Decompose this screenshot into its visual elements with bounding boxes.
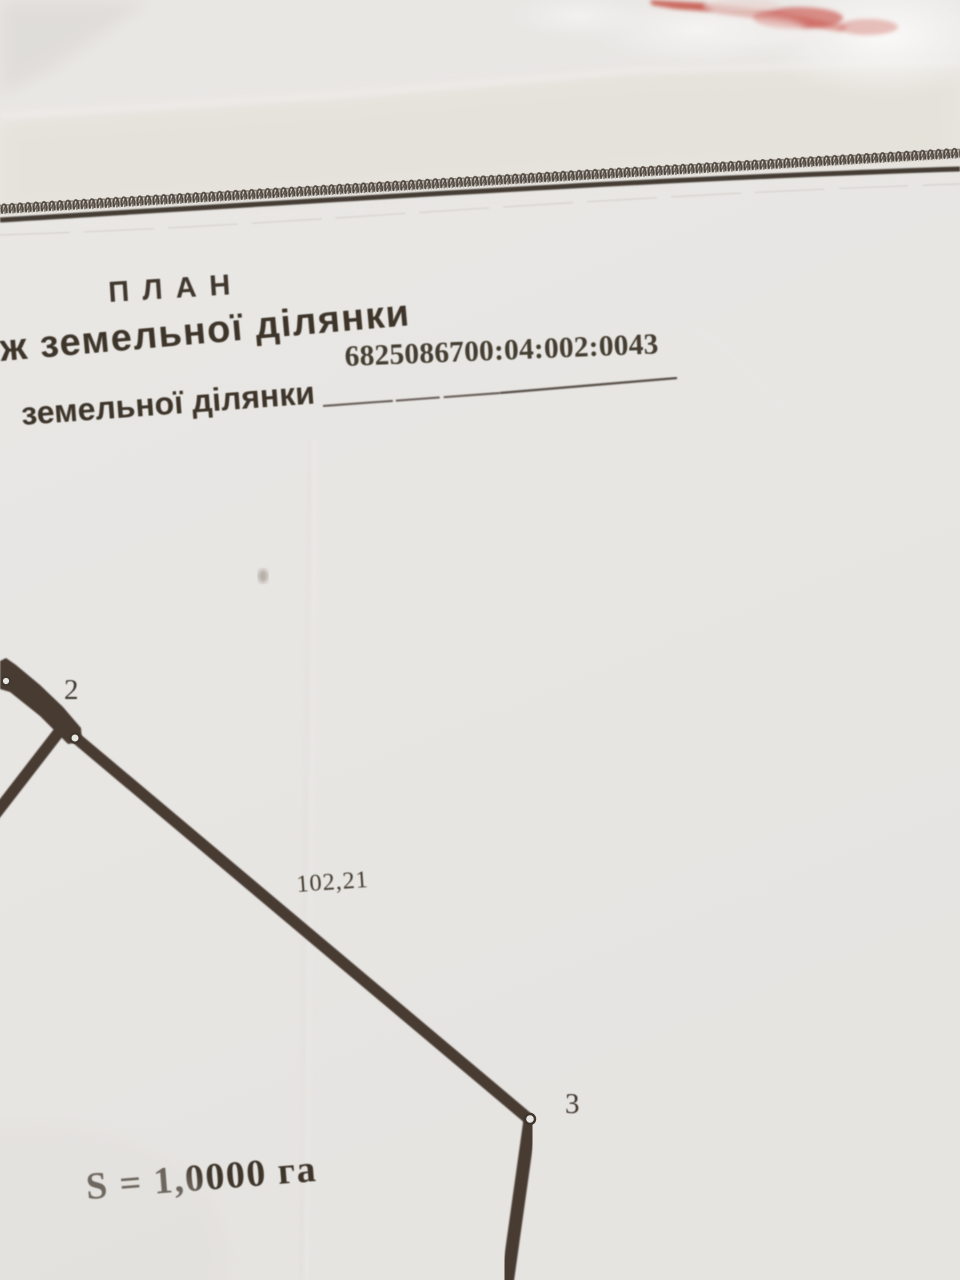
svg-text:102,21: 102,21 (296, 866, 370, 898)
svg-text:2: 2 (64, 674, 79, 706)
svg-text:3: 3 (565, 1088, 580, 1120)
